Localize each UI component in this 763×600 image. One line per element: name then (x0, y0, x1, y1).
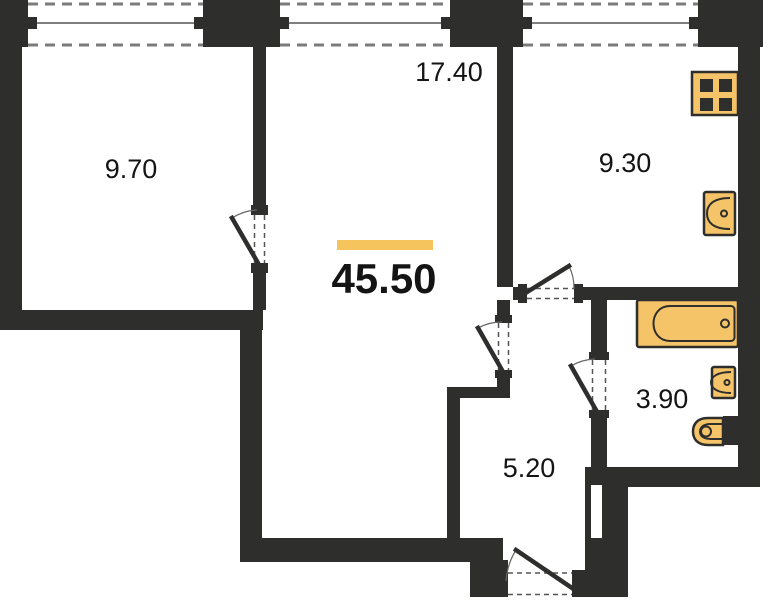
total-area-label: 45.50 (331, 255, 436, 302)
toilet-cistern (723, 416, 740, 445)
room-area-label-bathroom: 3.90 (636, 384, 689, 414)
wall (738, 0, 760, 487)
window-frame-cap (441, 17, 450, 29)
window-frame-cap (28, 17, 37, 29)
door-swing-arc (569, 266, 574, 289)
door-leaf (516, 550, 572, 588)
door-bathroom (571, 359, 606, 410)
door-kitchen (527, 266, 574, 299)
room-area-label-bedroom: 9.70 (105, 154, 158, 184)
wall (497, 47, 513, 287)
door-jamb (589, 410, 609, 418)
window (280, 4, 450, 45)
wall (240, 538, 503, 562)
window-frame-cap (689, 17, 698, 29)
wall (240, 310, 262, 562)
wall (0, 310, 263, 330)
window-frame-cap (194, 17, 203, 29)
room-area-label-living: 17.40 (415, 57, 483, 87)
wall (253, 47, 266, 205)
room-area-label-hallway: 5.20 (503, 453, 556, 483)
wall (572, 570, 628, 597)
wall (253, 273, 266, 310)
door-living (478, 322, 509, 370)
shaft-niche (591, 485, 602, 538)
windows (28, 4, 698, 45)
window (28, 4, 203, 45)
wall (447, 387, 460, 562)
wall (450, 0, 523, 47)
door-entrance (506, 550, 572, 595)
wall (583, 287, 760, 300)
door-bedroom (232, 210, 265, 263)
room-area-label-kitchen: 9.30 (599, 148, 652, 178)
washbasin-icon (711, 367, 735, 398)
window-frame-cap (280, 17, 289, 29)
toilet-icon (693, 418, 723, 445)
total-area-bar (337, 240, 433, 250)
window (523, 4, 698, 45)
floor-plan: 45.50 9.70 17.40 9.30 3.90 5.20 (0, 0, 763, 600)
wall (585, 467, 760, 487)
door-jamb (574, 284, 583, 303)
kitchen-sink-icon (704, 192, 735, 235)
window-frame-cap (523, 17, 532, 29)
wall (591, 418, 607, 467)
wall (0, 0, 22, 330)
door-swing-arc (571, 359, 595, 366)
stove-icon (692, 72, 738, 115)
bathtub-icon (637, 300, 738, 347)
wall (497, 300, 510, 315)
wall (203, 0, 280, 47)
wall (470, 560, 508, 597)
wall (591, 300, 607, 352)
floor-plan-canvas: 45.50 9.70 17.40 9.30 3.90 5.20 (0, 0, 763, 600)
